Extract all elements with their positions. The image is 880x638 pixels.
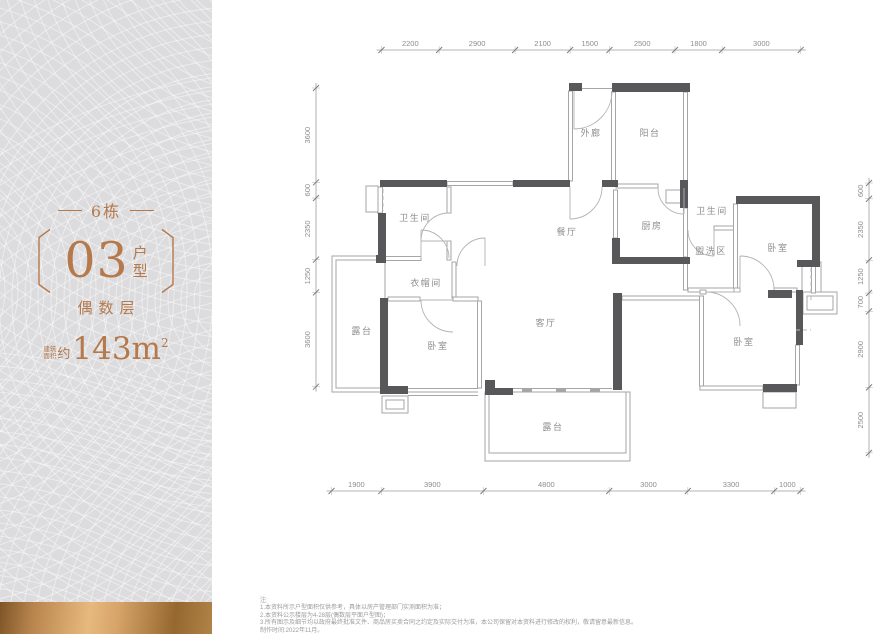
room-label-dining: 餐厅 — [556, 226, 577, 237]
room-label-terrace-west: 露台 — [351, 325, 372, 336]
room-label-cloakroom: 衣帽间 — [410, 277, 442, 288]
note-line: 3.所有图示及细节均以政府最终批准文件、商品房买卖合同之约定及实际交付为准，本公… — [260, 620, 870, 627]
right-dash-ornament — [130, 210, 154, 211]
thin-walls — [332, 91, 837, 461]
dim-label: 600 — [856, 185, 865, 198]
dim-label: 1900 — [348, 480, 365, 489]
building-name: 6栋 — [91, 198, 121, 222]
gold-accent-bar — [0, 602, 212, 634]
dim-label: 1250 — [856, 268, 865, 285]
dim-label: 3600 — [303, 331, 312, 348]
area-statement: 建筑 面积 约 143m 2 — [0, 334, 212, 365]
dim-label: 2100 — [534, 39, 551, 48]
building-label: 6栋 — [0, 198, 212, 222]
decorative-side-panel: 6栋 03 户 型 偶数层 建筑 — [0, 0, 212, 602]
dim-label: 1800 — [690, 39, 707, 48]
room-label-bedroom-sw: 卧室 — [427, 340, 448, 351]
unit-suffix-char-1: 户 — [133, 244, 148, 262]
dim-label: 3000 — [753, 39, 770, 48]
dim-label: 700 — [856, 296, 865, 309]
dim-label: 2350 — [303, 220, 312, 237]
room-label-wash-area: 盥洗区 — [695, 245, 727, 256]
room-label-bath-west: 卫生间 — [399, 212, 431, 223]
note-line: 制作时间:2022年11月。 — [260, 628, 870, 635]
disclaimer-notes: 注: 1.本资料所示户型面积仅供参考，具体以房产管理部门实测面积为准； 2.本资… — [260, 598, 870, 635]
room-label-bedroom-se: 卧室 — [733, 336, 754, 347]
dim-label: 3000 — [640, 480, 657, 489]
left-dash-ornament — [58, 210, 82, 211]
dim-label: 2900 — [469, 39, 486, 48]
area-caption: 建筑 面积 — [43, 346, 56, 360]
room-label-terrace-south: 露台 — [542, 421, 563, 432]
room-label-kitchen: 厨房 — [641, 220, 662, 231]
dim-label: 2500 — [634, 39, 651, 48]
dim-label: 2900 — [856, 341, 865, 358]
dim-label: 3600 — [303, 127, 312, 144]
room-label-bedroom-ne: 卧室 — [767, 242, 788, 253]
unit-suffix-char-2: 型 — [133, 262, 148, 280]
dim-label: 2200 — [402, 39, 419, 48]
dim-label: 4800 — [538, 480, 555, 489]
dim-label: 1500 — [581, 39, 598, 48]
area-exponent: 2 — [161, 336, 169, 350]
dim-label: 1250 — [303, 268, 312, 285]
floor-plan: 外廊 阳台 卫生间 餐厅 厨房 卫生间 盥洗区 卧室 衣帽间 露台 卧室 客厅 … — [212, 0, 880, 638]
note-line: 1.本资料所示户型面积仅供参考，具体以房产管理部门实测面积为准； — [260, 605, 870, 612]
room-label-bath-east: 卫生间 — [696, 205, 728, 216]
dim-label: 2500 — [856, 412, 865, 429]
room-label-living: 客厅 — [535, 317, 556, 328]
room-label-corridor: 外廊 — [580, 127, 601, 138]
dim-label: 1000 — [779, 480, 796, 489]
unit-type-suffix: 户 型 — [133, 244, 148, 280]
unit-summary: 6栋 03 户 型 偶数层 建筑 — [0, 0, 212, 602]
floor-parity-label: 偶数层 — [0, 297, 212, 318]
dim-label: 600 — [303, 184, 312, 197]
area-value: 143m — [72, 334, 161, 365]
area-approx: 约 — [57, 343, 70, 362]
dim-label: 3300 — [723, 480, 740, 489]
unit-number: 03 — [64, 231, 128, 291]
room-label-balcony: 阳台 — [639, 127, 660, 138]
dim-label: 2350 — [856, 221, 865, 238]
dim-label: 3900 — [424, 480, 441, 489]
floorplan-page: 6栋 03 户 型 偶数层 建筑 — [0, 0, 880, 638]
unit-type-block: 03 户 型 — [36, 228, 176, 294]
